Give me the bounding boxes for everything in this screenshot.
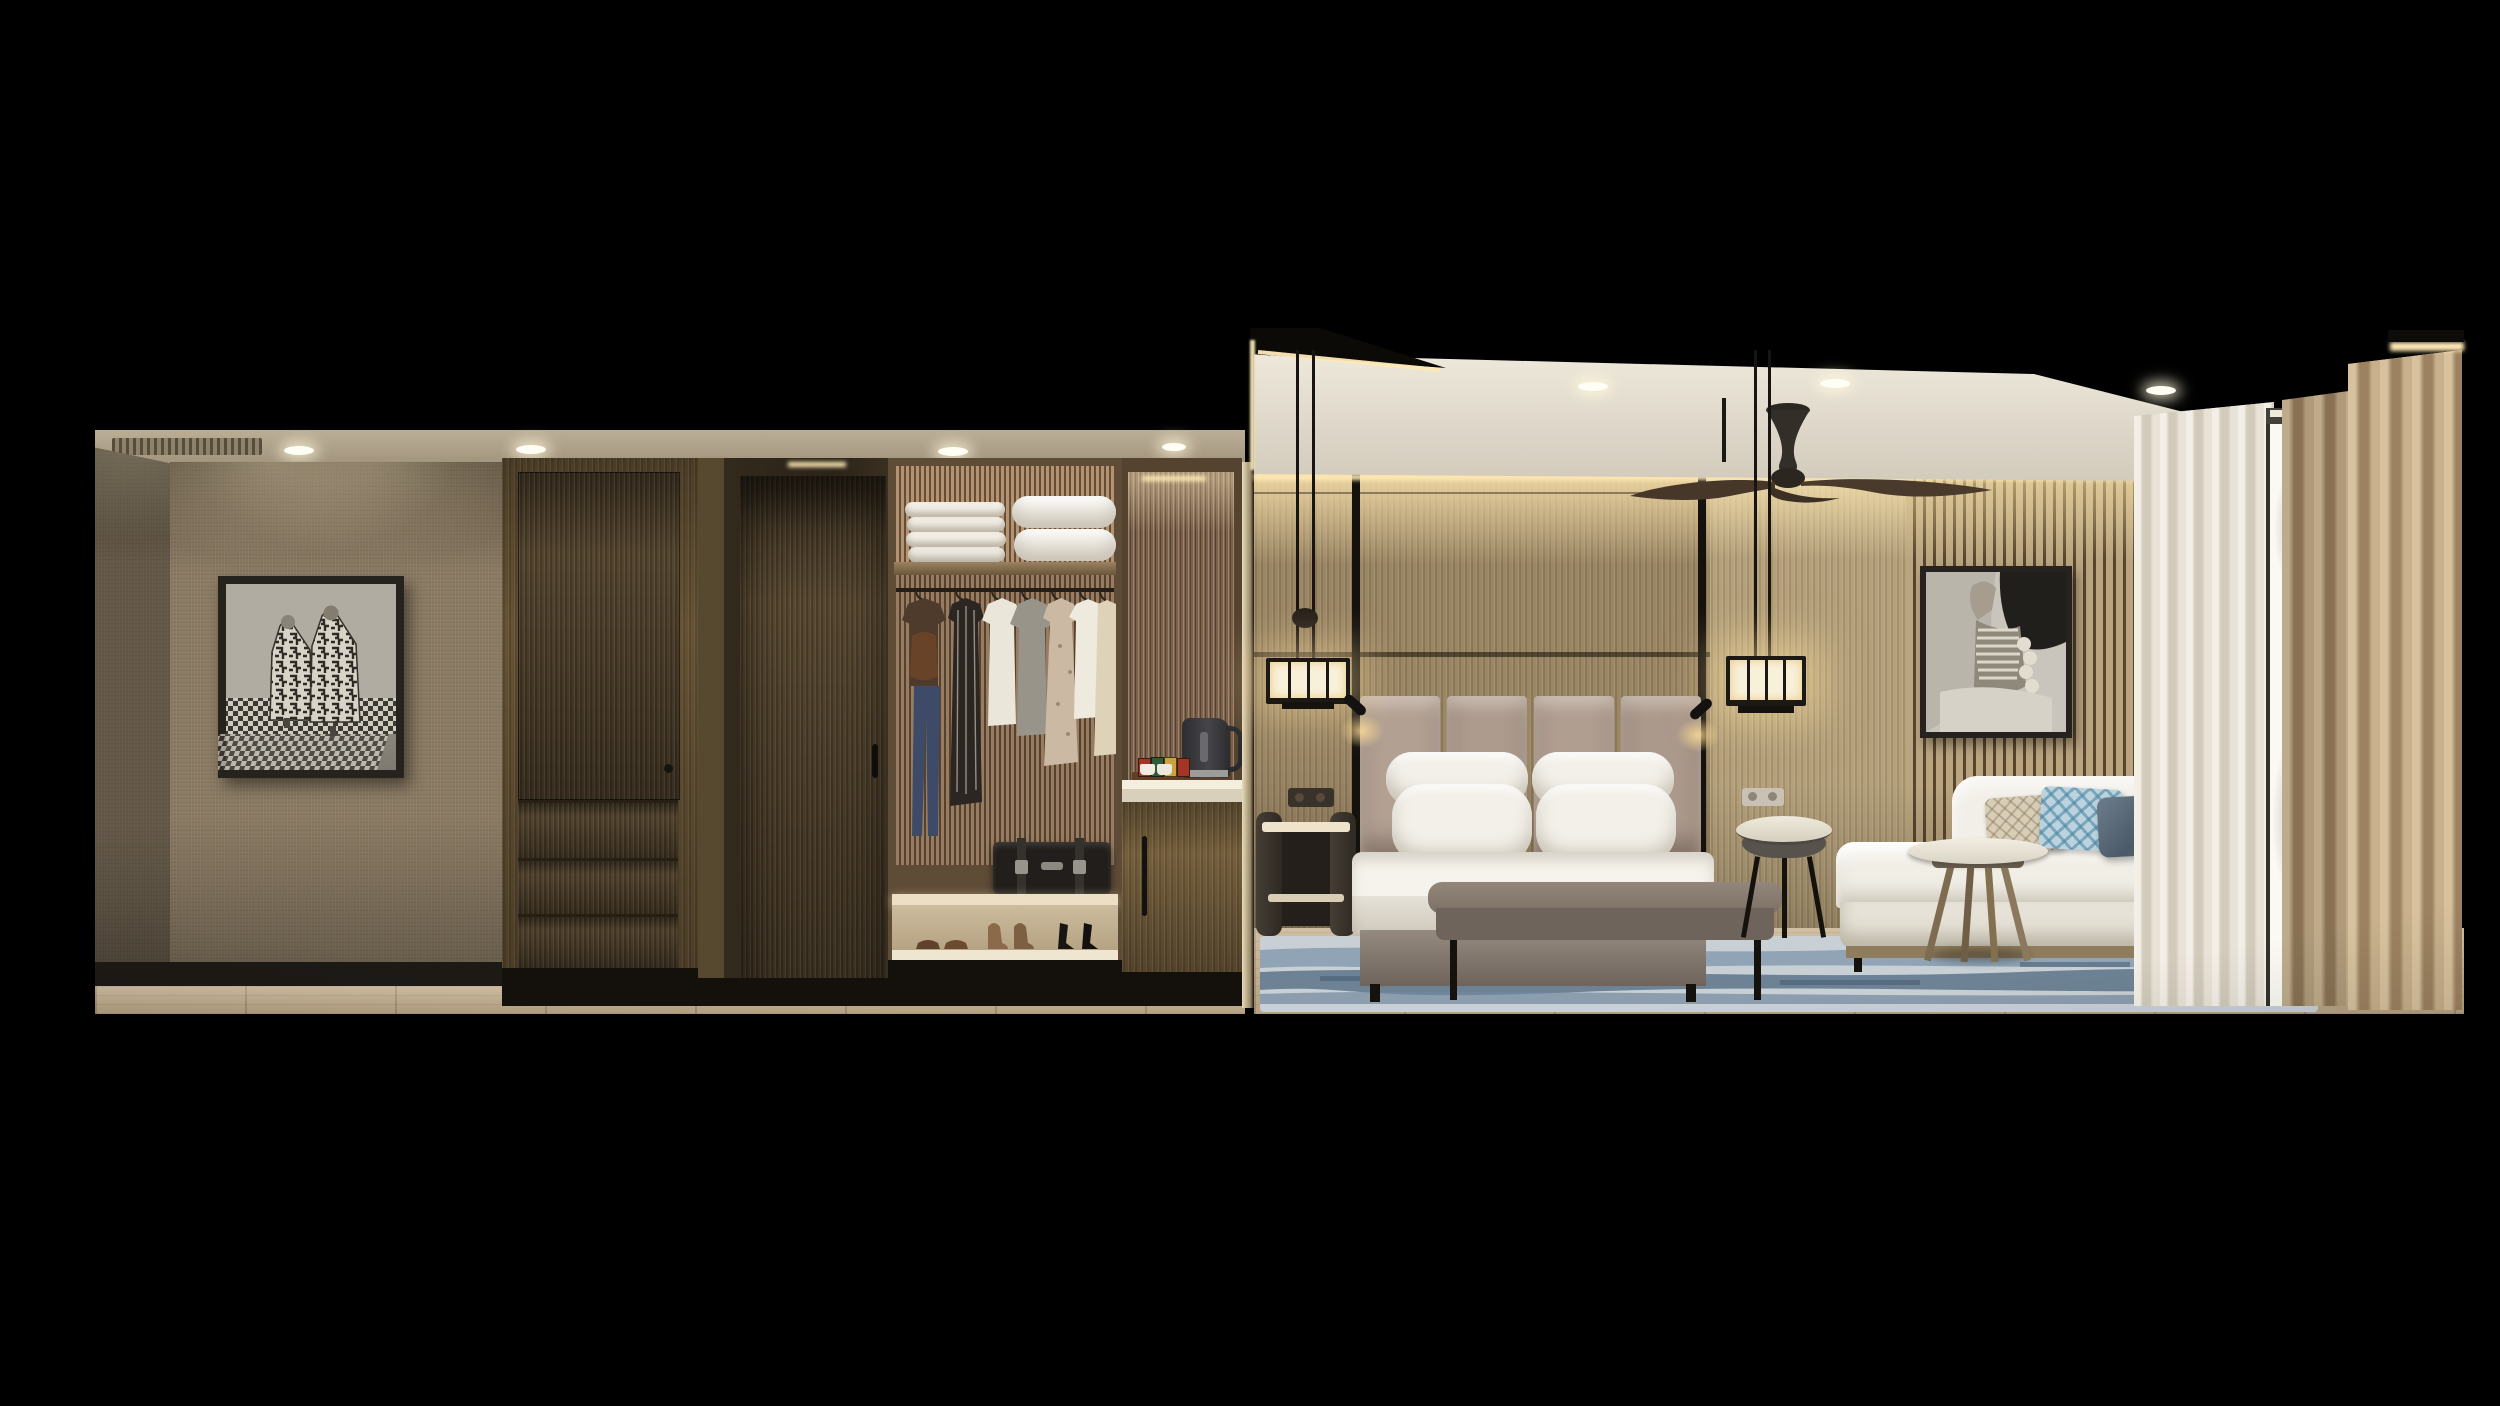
wardrobe-drawer (518, 800, 678, 859)
closet-plinth (888, 960, 1122, 1006)
room-render (0, 0, 2500, 1406)
corridor-downlight (284, 446, 314, 455)
wardrobe-plinth (502, 968, 698, 1006)
artwork-two-figures (218, 576, 404, 778)
wardrobe-drawer (518, 858, 678, 915)
corridor-downlight (938, 447, 968, 456)
corridor-downlight (1162, 443, 1186, 451)
reading-light-glow (1340, 714, 1384, 748)
nightstand (1256, 812, 1356, 936)
minibar-counter (1122, 780, 1242, 802)
side-table (1736, 816, 1832, 938)
corridor-downlight (516, 445, 546, 454)
wardrobe-door-panel (518, 472, 680, 800)
minibar-toplight (1142, 476, 1206, 481)
door-alcove-light (788, 462, 846, 467)
bedroom-downlight (1578, 382, 1608, 391)
partition-glow-edge (1250, 340, 1255, 470)
ceiling-fan (1620, 398, 2000, 516)
minibar-plinth (1122, 972, 1242, 1006)
closet-shelf-lit (892, 894, 1118, 905)
partition-edge (1242, 462, 1254, 1008)
wardrobe-knob (664, 764, 673, 773)
minibar-handle (1142, 836, 1147, 916)
closet-shelf (894, 562, 1116, 575)
suitcase (993, 842, 1111, 894)
entry-door (740, 476, 886, 986)
closet-clothes (894, 576, 1116, 856)
artwork-portrait (1920, 566, 2072, 738)
closet-towels (905, 502, 1005, 564)
drape-main (2348, 350, 2462, 1010)
bed-bench (1428, 882, 1782, 1002)
cups (1140, 764, 1174, 776)
corridor-baseboard (95, 962, 507, 988)
shoe-shelf-base (892, 950, 1118, 960)
outlet-left (1288, 788, 1334, 807)
pendant-left (1266, 350, 1356, 710)
pendant-right (1724, 350, 1810, 712)
sheer-curtain-left (2134, 402, 2274, 1006)
ceiling-vent-grille (112, 438, 262, 455)
bedroom-downlight (2146, 386, 2176, 395)
closet-pillows (1012, 496, 1116, 562)
corridor-side-wall (95, 442, 173, 988)
door-plinth (698, 978, 890, 1006)
drape-inner (2282, 390, 2356, 1006)
drape-cornice-light (2390, 342, 2464, 351)
minibar-cabinet (1122, 802, 1242, 974)
bedroom-downlight (1820, 379, 1850, 388)
coffee-table (1908, 838, 2048, 968)
outlet-right (1742, 788, 1784, 806)
wardrobe-drawer (518, 914, 678, 969)
shoe-shelf (892, 905, 1118, 955)
drape-cornice (2388, 330, 2464, 342)
door-handle (872, 744, 878, 778)
reading-light-glow (1676, 718, 1720, 752)
